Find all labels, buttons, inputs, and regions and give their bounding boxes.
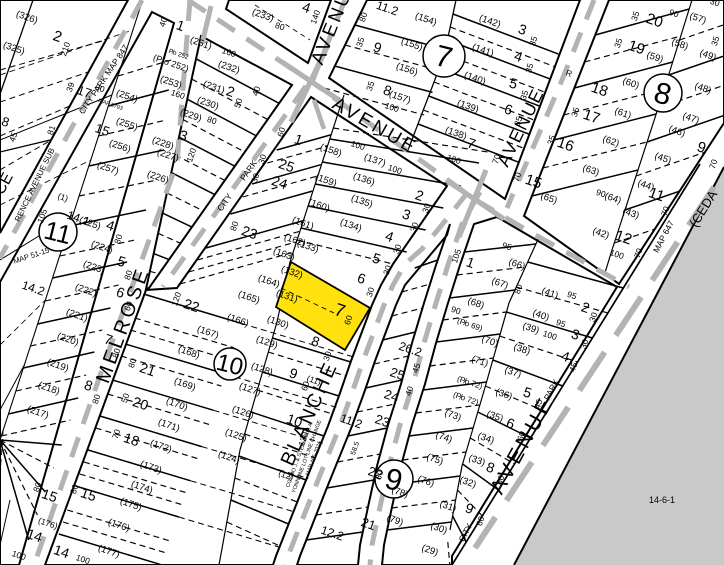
svg-text:14-6-1: 14-6-1 bbox=[649, 495, 675, 505]
